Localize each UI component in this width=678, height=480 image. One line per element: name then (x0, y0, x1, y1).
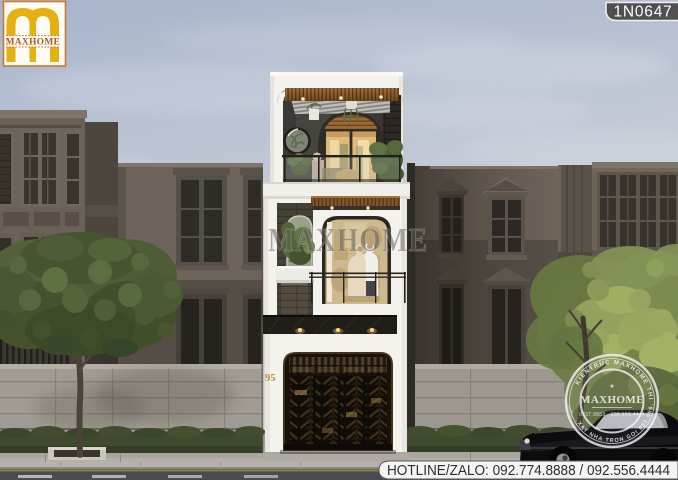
svg-text:MAXHOME: MAXHOME (6, 37, 61, 47)
svg-text:HOTLINE/ZALO: 092.774.8888 / 0: HOTLINE/ZALO: 092.774.8888 / 092.556.444… (387, 463, 670, 479)
svg-text:MAXHOME: MAXHOME (580, 394, 644, 406)
svg-text:MAXHOME: MAXHOME (268, 222, 428, 259)
svg-text:★: ★ (609, 383, 614, 390)
svg-text:0937.8888 - 092.556.4444: 0937.8888 - 092.556.4444 (579, 412, 645, 418)
svg-text:95: 95 (265, 373, 276, 384)
svg-text:1N0647: 1N0647 (613, 4, 672, 21)
